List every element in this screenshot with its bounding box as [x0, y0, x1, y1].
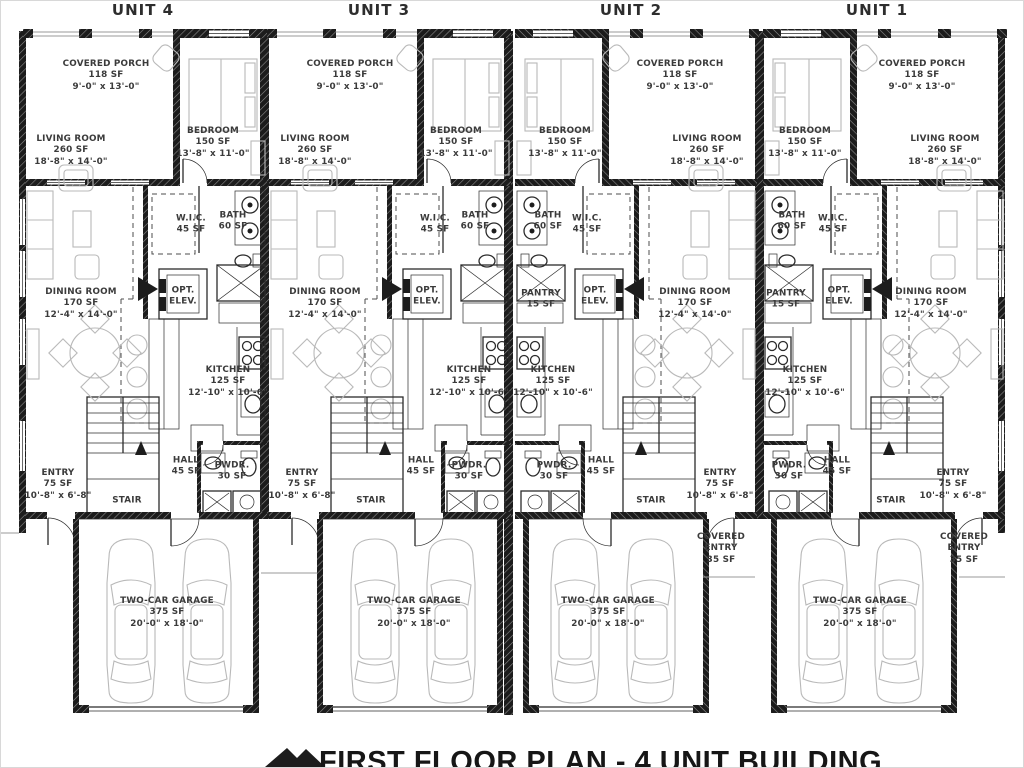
title-logo-icon — [265, 748, 325, 767]
exterior-walls — [19, 31, 1005, 715]
unit-1-title: UNIT 1 — [846, 1, 908, 19]
unit-3-title: UNIT 3 — [348, 1, 410, 19]
unit-4-title: UNIT 4 — [112, 1, 174, 19]
unit-3-plan — [267, 29, 511, 713]
unit-4-plan — [23, 29, 267, 713]
floor-plan-drawing — [1, 1, 1023, 767]
unit-1-plan — [763, 29, 1007, 713]
unit-2-plan — [515, 29, 759, 713]
floor-plan-page: UNIT 4 UNIT 3 UNIT 2 UNIT 1 COVERED PORC… — [0, 0, 1024, 768]
unit-2-title: UNIT 2 — [600, 1, 662, 19]
sheet-title: FIRST FLOOR PLAN - 4 UNIT BUILDING — [319, 746, 882, 768]
